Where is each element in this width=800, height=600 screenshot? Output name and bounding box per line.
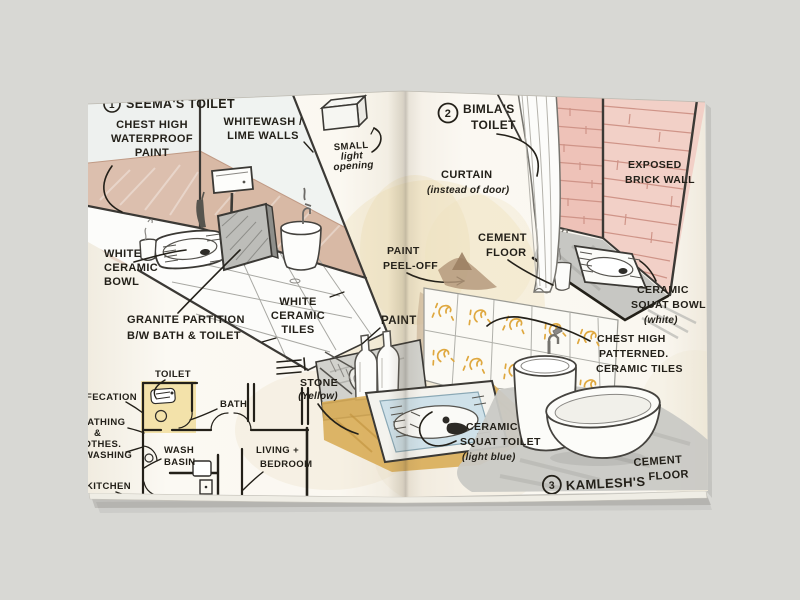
section-number-2: 2 <box>445 108 452 120</box>
label-chest-high-2: WATERPROOF <box>111 133 193 145</box>
spine-fold-shadow <box>388 88 422 500</box>
label-squat-bowl-1: CERAMIC <box>637 284 689 296</box>
label-curtain-1: CURTAIN <box>441 169 492 181</box>
label-chest-high-3: PAINT <box>135 147 169 159</box>
label-bimla-cement-2: FLOOR <box>486 247 527 259</box>
plan-label-bathing-2: & <box>94 428 101 439</box>
label-exposed-brick-1: EXPOSED <box>628 159 682 171</box>
sketch-canvas: 1 SEEMA'S TOILET CHEST HIGH WATERPROOF P… <box>0 0 800 600</box>
label-curtain-2: (instead of door) <box>427 185 510 196</box>
label-white-tiles-1: WHITE <box>279 296 316 308</box>
label-white-bowl-2: CERAMIC <box>104 262 158 274</box>
label-patterned-tiles-3: CERAMIC TILES <box>596 363 683 375</box>
label-granite-1: GRANITE PARTITION <box>127 314 245 326</box>
label-squat-toilet-2: SQUAT TOILET <box>460 436 541 448</box>
label-white-bowl-3: BOWL <box>104 276 139 288</box>
label-exposed-brick-2: BRICK WALL <box>625 174 695 186</box>
label-whitewash-2: LIME WALLS <box>227 130 299 142</box>
label-stone-1: STONE <box>300 377 338 389</box>
label-bimla-cement-1: CEMENT <box>478 232 527 244</box>
label-squat-bowl-3: (white) <box>644 315 678 326</box>
bimla-title-1: BIMLA'S <box>463 102 515 116</box>
label-granite-2: B/W BATH & TOILET <box>127 330 241 342</box>
bimla-title-2: TOILET <box>471 118 516 132</box>
light-opening-window <box>322 96 367 130</box>
plan-label-bath: BATH <box>220 399 247 410</box>
plan-label-living-1: LIVING + <box>256 445 299 456</box>
plan-fixture-box <box>193 461 211 476</box>
sketchbook-photo: 1 SEEMA'S TOILET CHEST HIGH WATERPROOF P… <box>0 0 800 600</box>
label-patterned-tiles-2: PATTERNED. <box>599 348 669 360</box>
plan-label-kitchen: KITCHEN <box>86 481 131 492</box>
plan-label-toilet: TOILET <box>155 369 191 380</box>
plan-label-wash-2: BASIN <box>164 457 196 468</box>
label-white-bowl-1: WHITE <box>104 248 141 260</box>
plan-label-bathing-4: WASHING <box>84 450 132 461</box>
plan-label-living-2: BEDROOM <box>260 459 312 470</box>
label-whitewash-1: WHITEWASH / <box>224 116 303 128</box>
label-patterned-tiles-1: CHEST HIGH <box>597 333 666 345</box>
label-squat-bowl-2: SQUAT BOWL <box>631 299 706 311</box>
label-squat-toilet-1: CERAMIC <box>466 421 518 433</box>
label-chest-high-1: CHEST HIGH <box>116 119 188 131</box>
label-white-tiles-2: CERAMIC <box>271 310 325 322</box>
label-squat-toilet-3: (light blue) <box>462 452 516 463</box>
label-white-tiles-3: TILES <box>281 324 314 336</box>
seema-squat-toilet <box>155 231 225 269</box>
plan-label-wash-1: WASH <box>164 445 194 456</box>
label-stone-2: (Yellow) <box>298 391 338 402</box>
section-number-3: 3 <box>548 480 555 492</box>
